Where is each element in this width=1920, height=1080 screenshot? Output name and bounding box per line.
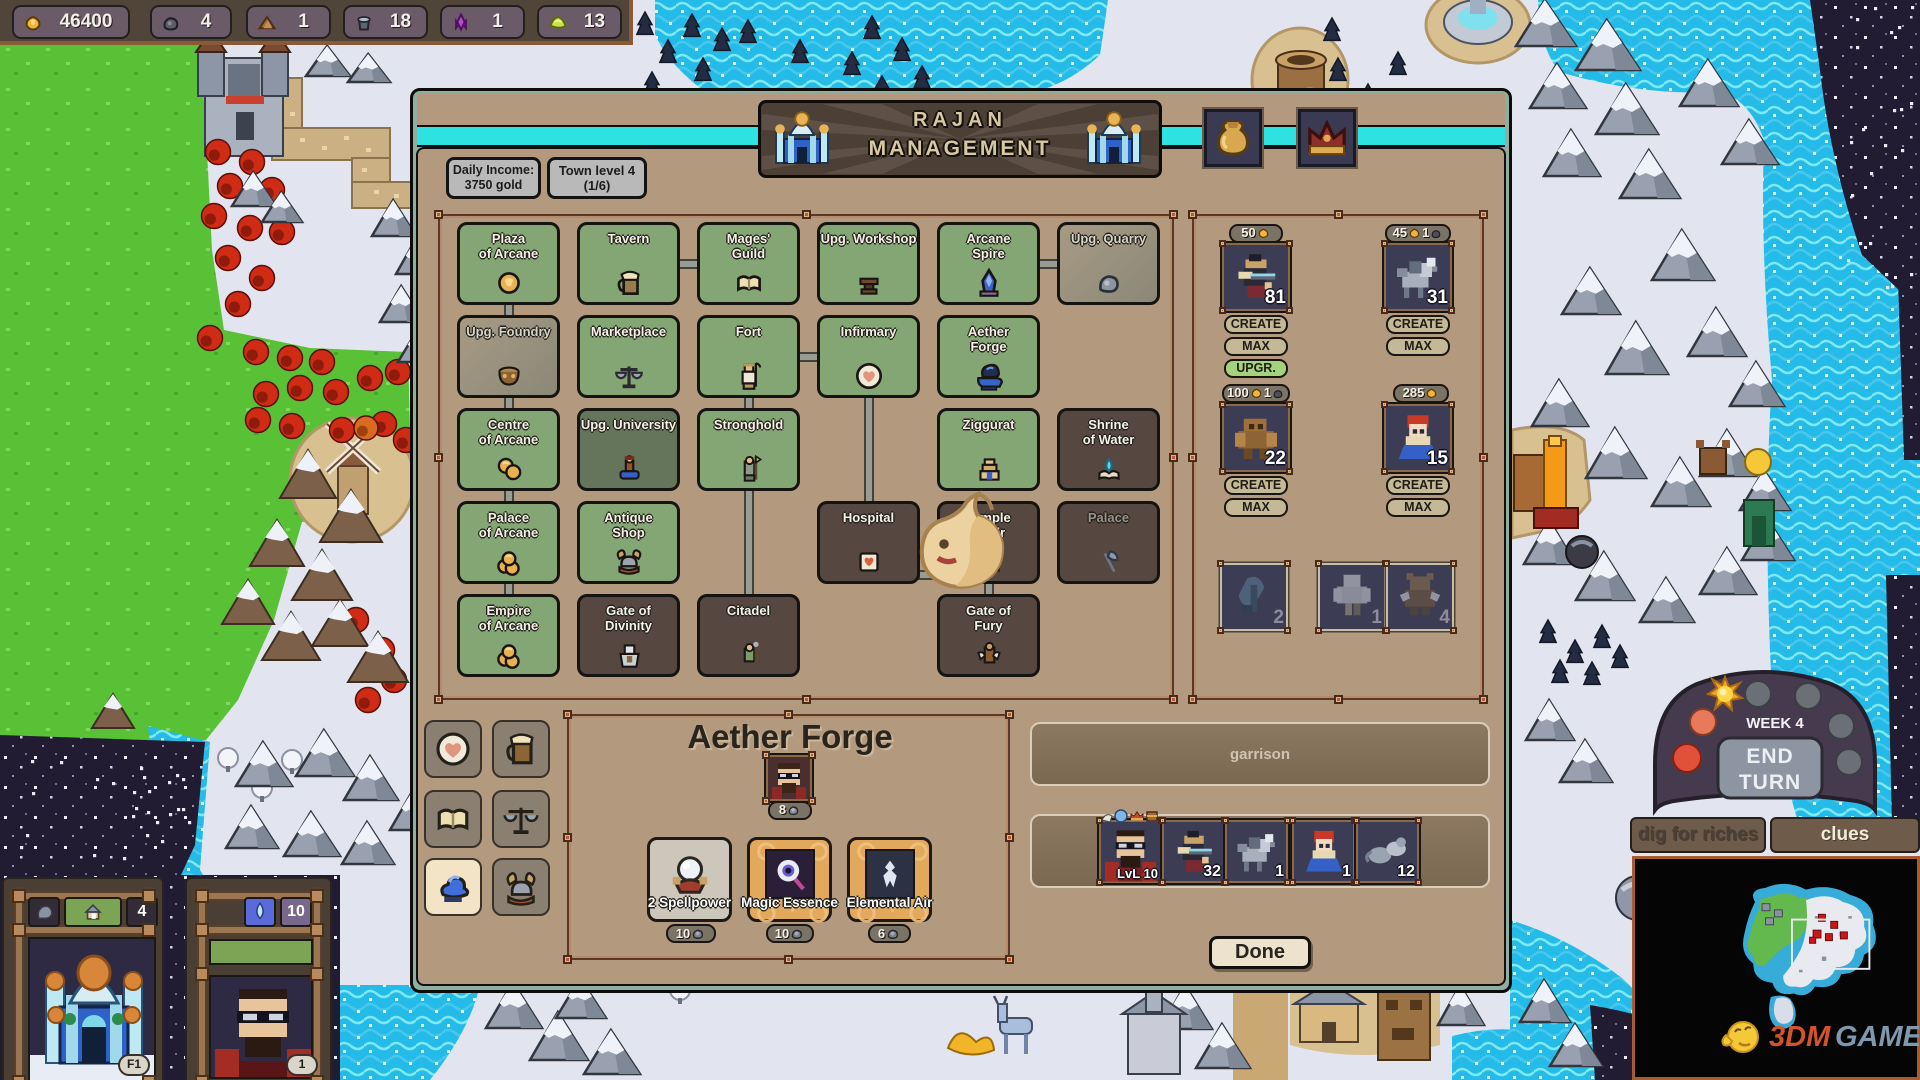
svg-text:3DM: 3DM xyxy=(1769,1021,1831,1053)
svg-text:END: END xyxy=(1746,745,1793,768)
svg-text:TURN: TURN xyxy=(1739,771,1801,794)
svg-text:WEEK 4: WEEK 4 xyxy=(1746,715,1804,732)
svg-text:GAME: GAME xyxy=(1835,1021,1919,1053)
